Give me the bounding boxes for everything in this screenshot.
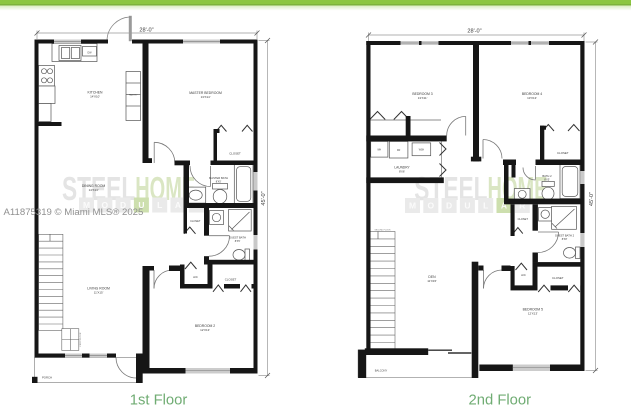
svg-text:28'-0": 28'-0" xyxy=(139,28,153,34)
svg-text:8'X5': 8'X5' xyxy=(235,240,241,243)
svg-text:1st Floor: 1st Floor xyxy=(130,393,188,409)
svg-text:PANTRY: PANTRY xyxy=(129,94,138,97)
svg-text:45'-0": 45'-0" xyxy=(589,192,595,206)
svg-text:12'X13': 12'X13' xyxy=(528,312,538,316)
svg-text:L: L xyxy=(157,200,162,210)
svg-text:14'X14': 14'X14' xyxy=(89,188,99,192)
svg-text:2nd Floor: 2nd Floor xyxy=(469,393,532,409)
svg-text:O: O xyxy=(427,201,434,211)
svg-text:BALCONY: BALCONY xyxy=(375,369,388,373)
svg-text:WH: WH xyxy=(377,150,381,152)
svg-text:U: U xyxy=(464,201,470,211)
svg-text:CLOSET: CLOSET xyxy=(552,276,564,280)
svg-text:CLOSET: CLOSET xyxy=(225,277,237,281)
svg-text:M: M xyxy=(409,201,416,211)
svg-text:8'X5': 8'X5' xyxy=(216,180,222,183)
svg-text:45'-0": 45'-0" xyxy=(261,191,267,205)
svg-text:A/C: A/C xyxy=(193,275,198,279)
svg-text:WSH: WSH xyxy=(419,150,425,152)
svg-text:CLOSET: CLOSET xyxy=(557,151,569,155)
svg-text:A/C: A/C xyxy=(521,273,526,277)
svg-text:CLOSET: CLOSET xyxy=(229,152,241,156)
svg-text:12'X13': 12'X13' xyxy=(200,328,210,332)
svg-text:D: D xyxy=(446,201,452,211)
svg-text:BATH 2: BATH 2 xyxy=(542,174,552,178)
svg-text:14'X10': 14'X10' xyxy=(90,94,100,98)
svg-text:8'X5': 8'X5' xyxy=(544,178,550,181)
svg-text:DR: DR xyxy=(397,150,401,152)
svg-text:GUEST BATH 2: GUEST BATH 2 xyxy=(555,234,575,238)
svg-text:11'X15': 11'X15' xyxy=(427,279,437,283)
svg-text:FIRST FLOOR: FIRST FLOOR xyxy=(80,332,82,346)
svg-text:A11875319 © Miami MLS® 2025: A11875319 © Miami MLS® 2025 xyxy=(4,207,144,218)
svg-text:L: L xyxy=(483,201,488,211)
svg-text:13'X11': 13'X11' xyxy=(418,96,428,100)
svg-text:13'X13': 13'X13' xyxy=(527,96,537,100)
svg-text:8'X6': 8'X6' xyxy=(399,170,406,174)
svg-text:A: A xyxy=(175,200,181,210)
svg-text:GUEST BATH: GUEST BATH xyxy=(229,236,246,240)
svg-text:CLOSET: CLOSET xyxy=(518,217,529,221)
svg-text:8'X8': 8'X8' xyxy=(562,238,568,241)
svg-text:13'X14': 13'X14' xyxy=(201,95,211,99)
svg-text:SECOND FLOOR: SECOND FLOOR xyxy=(374,230,391,232)
svg-text:11'X15': 11'X15' xyxy=(94,291,104,295)
svg-text:MASTER BATH: MASTER BATH xyxy=(209,176,228,180)
svg-text:PORCH: PORCH xyxy=(42,376,52,380)
svg-text:28'-0": 28'-0" xyxy=(467,29,481,35)
svg-text:CLOSET: CLOSET xyxy=(190,219,201,223)
